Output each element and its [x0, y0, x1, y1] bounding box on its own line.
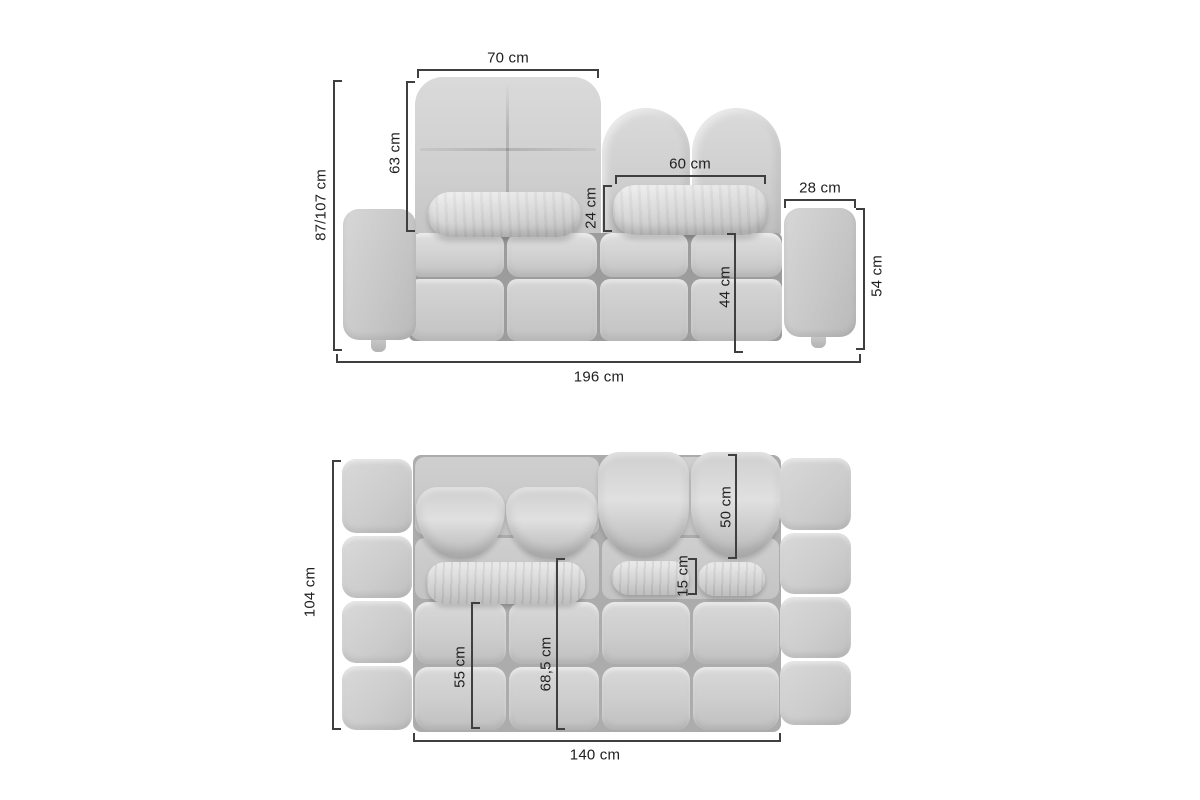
- dimension-diagram: 70 cm 63 cm 87/107 cm 60 cm 24 cm 28 cm …: [0, 0, 1200, 800]
- dim-side-table-width-line: [784, 199, 856, 201]
- dim-headrest-cushion-width-label: 60 cm: [669, 156, 711, 173]
- dim-headrest-cushion-width-line: [615, 175, 766, 177]
- dim-backrest-cushion-depth-label: 50 cm: [718, 486, 735, 528]
- dim-side-table-width-label: 28 cm: [799, 180, 841, 197]
- dim-headrest-cushion-height-line: [603, 185, 605, 232]
- top-right-armrest-square: [780, 597, 851, 658]
- dim-backrest-width-label: 70 cm: [487, 50, 529, 67]
- top-lumbar-pillow-left: [427, 562, 585, 604]
- dim-backrest-height-line: [406, 81, 408, 232]
- dim-headrest-cushion-height-label: 24 cm: [583, 187, 600, 229]
- dim-seat-height-label: 44 cm: [717, 266, 734, 308]
- top-left-armrest-square: [342, 601, 412, 663]
- dim-seat-height-line: [734, 233, 736, 353]
- front-base-cushion: [691, 279, 782, 341]
- dim-pillow-depth-label: 15 cm: [675, 555, 692, 597]
- front-right-side-table: [784, 208, 856, 337]
- front-base-cushion: [507, 279, 597, 341]
- dim-seat-width-label: 140 cm: [570, 747, 620, 764]
- front-left-table-leg: [371, 338, 386, 352]
- dim-total-width-label: 196 cm: [574, 369, 624, 386]
- dim-inner-depth-label: 68,5 cm: [538, 637, 555, 692]
- backrest-horizontal-seam: [420, 148, 596, 151]
- dim-seat-width-line: [413, 740, 781, 742]
- front-base-cushion: [600, 279, 688, 341]
- top-left-armrest-square: [342, 459, 412, 533]
- dim-seat-depth-line: [471, 602, 473, 729]
- top-quilt-square: [693, 667, 779, 730]
- top-back-cushion-right-1: [598, 452, 689, 558]
- front-seat-cushion: [600, 233, 688, 277]
- dim-total-width-line: [336, 361, 861, 363]
- dim-side-table-height-line: [863, 208, 865, 350]
- top-quilt-square: [693, 602, 779, 664]
- front-lumbar-pillow-right: [613, 185, 767, 235]
- dim-backrest-cushion-depth-line: [735, 454, 737, 559]
- front-lumbar-pillow-left: [428, 192, 581, 237]
- top-quilt-square: [602, 667, 690, 730]
- top-right-armrest-square: [780, 661, 851, 725]
- front-seat-cushion: [507, 233, 597, 277]
- dim-side-table-height-label: 54 cm: [869, 255, 886, 297]
- dim-backrest-height-label: 63 cm: [387, 132, 404, 174]
- dim-total-depth-label: 104 cm: [302, 567, 319, 617]
- dim-total-depth-line: [332, 460, 334, 730]
- top-quilt-square: [602, 602, 690, 664]
- front-seat-cushion: [409, 233, 504, 277]
- front-seat-cushion: [691, 233, 782, 277]
- top-lumbar-pillow-right-2: [698, 562, 765, 596]
- top-left-armrest-square: [342, 536, 412, 598]
- dim-backrest-width-line: [417, 69, 599, 71]
- front-base-cushion: [409, 279, 504, 341]
- dim-total-height-label: 87/107 cm: [313, 169, 330, 241]
- dim-total-height-line: [333, 80, 335, 351]
- dim-inner-depth-line: [556, 558, 558, 730]
- dim-pillow-depth-line: [695, 558, 697, 595]
- top-right-armrest-square: [780, 533, 851, 594]
- top-left-armrest-square: [342, 666, 412, 730]
- dim-seat-depth-label: 55 cm: [452, 646, 469, 688]
- top-right-armrest-square: [780, 458, 851, 530]
